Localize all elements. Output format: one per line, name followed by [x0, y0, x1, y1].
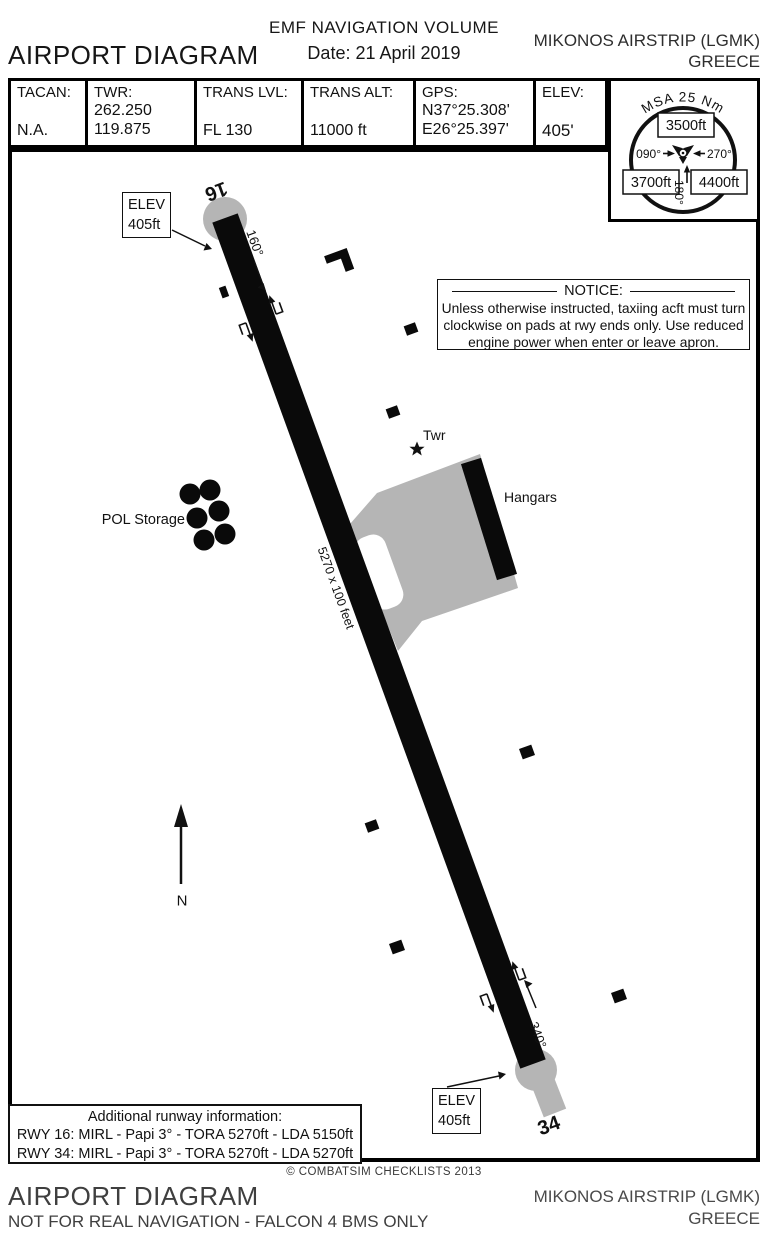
- building: [219, 286, 229, 299]
- building: [611, 989, 627, 1004]
- header-country: GREECE: [534, 51, 760, 72]
- msa-bearing-east: 270°: [707, 147, 732, 161]
- msa-bearing-west: 090°: [636, 147, 661, 161]
- msa-south-arrow: [684, 165, 690, 173]
- volume-title: EMF NAVIGATION VOLUME: [269, 18, 499, 38]
- msa-sector-southeast: 4400ft: [699, 175, 739, 191]
- tower-star-icon: [409, 442, 424, 456]
- elev16-arrow-line: [172, 230, 205, 246]
- footer-airport-name: MIKONOS AIRSTRIP (LGMK): [534, 1186, 760, 1208]
- addinfo-rwy16: RWY 16: MIRL - Papi 3° - TORA 5270ft - L…: [10, 1126, 360, 1144]
- elev34-line2: 405ft: [438, 1111, 475, 1131]
- addinfo-title: Additional runway information:: [10, 1108, 360, 1126]
- tacan-label: TACAN:: [17, 84, 79, 102]
- elev34-arrow-line: [447, 1076, 499, 1087]
- elev16-line2: 405ft: [128, 215, 165, 235]
- building: [404, 322, 419, 336]
- footer-page-title: AIRPORT DIAGRAM: [8, 1181, 259, 1212]
- tower-label: Twr: [423, 427, 446, 443]
- elev34-line1: ELEV: [438, 1091, 475, 1111]
- elev-label: ELEV:: [542, 84, 584, 102]
- elev-value: 405': [542, 121, 584, 141]
- l-shaped-building: [324, 248, 354, 277]
- trans-lvl-cell: TRANS LVL: FL 130: [197, 81, 304, 145]
- msa-west-arrow: [668, 150, 676, 156]
- pol-storage-tanks: [180, 480, 236, 551]
- notice-rule-right: [630, 291, 735, 292]
- gps-lon: E26°25.397': [422, 121, 527, 140]
- elev34-arrow-head: [498, 1072, 506, 1080]
- additional-info-box: Additional runway information: RWY 16: M…: [8, 1104, 362, 1164]
- header-airport-block: MIKONOS AIRSTRIP (LGMK) GREECE: [534, 30, 760, 73]
- page-title: AIRPORT DIAGRAM: [8, 40, 259, 71]
- date-line: Date: 21 April 2019: [307, 43, 460, 64]
- twr-freq-vhf: 119.875: [94, 121, 188, 140]
- trans-alt-label: TRANS ALT:: [310, 84, 407, 102]
- msa-east-arrow: [693, 150, 701, 156]
- elev34-box: ELEV 405ft: [432, 1088, 481, 1134]
- tacan-cell: TACAN: N.A.: [11, 81, 88, 145]
- north-label: N: [177, 893, 188, 910]
- building: [519, 745, 535, 760]
- msa-sector-southwest: 3700ft: [631, 175, 671, 191]
- copyright: © COMBATSIM CHECKLISTS 2013: [286, 1166, 481, 1178]
- notice-box: NOTICE: Unless otherwise instructed, tax…: [437, 279, 750, 350]
- date-label: Date:: [307, 43, 350, 63]
- addinfo-rwy34: RWY 34: MIRL - Papi 3° - TORA 5270ft - L…: [10, 1145, 360, 1163]
- msa-rose: MSA 25 Nm 3500ft 090° 270° 3700ft 4400ft: [611, 81, 757, 219]
- date-value: 21 April 2019: [355, 43, 460, 63]
- trans-lvl-value: FL 130: [203, 122, 295, 141]
- header-airport-name: MIKONOS AIRSTRIP (LGMK): [534, 30, 760, 51]
- rwy34-heading-arrow: [524, 980, 533, 988]
- elev16-line1: ELEV: [128, 195, 165, 215]
- footer-country: GREECE: [534, 1208, 760, 1230]
- building: [389, 940, 405, 955]
- trans-lvl-label: TRANS LVL:: [203, 84, 295, 102]
- trans-alt-value: 11000 ft: [310, 122, 407, 141]
- notice-line2: clockwise on pads at rwy ends only. Use …: [438, 317, 749, 334]
- notice-body: Unless otherwise instructed, taxiing acf…: [438, 300, 749, 352]
- notice-line1: Unless otherwise instructed, taxiing acf…: [438, 300, 749, 317]
- footer-disclaimer: NOT FOR REAL NAVIGATION - FALCON 4 BMS O…: [8, 1212, 428, 1232]
- msa-sector-north: 3500ft: [666, 118, 706, 134]
- footer-airport-block: MIKONOS AIRSTRIP (LGMK) GREECE: [534, 1186, 760, 1230]
- gps-lat: N37°25.308': [422, 102, 527, 121]
- rwy34-number: 34: [535, 1112, 564, 1141]
- pol-storage-label: POL Storage: [92, 512, 185, 528]
- notice-header: NOTICE:: [438, 283, 749, 299]
- building: [386, 405, 401, 419]
- msa-bearing-south: 180°: [672, 180, 686, 205]
- twr-label: TWR:: [94, 84, 188, 102]
- msa-airfield-symbol: [672, 145, 694, 164]
- gps-cell: GPS: N37°25.308' E26°25.397': [416, 81, 536, 145]
- notice-rule-left: [452, 291, 557, 292]
- twr-cell: TWR: 262.250 119.875: [88, 81, 197, 145]
- notice-line3: engine power when enter or leave apron.: [438, 334, 749, 351]
- building: [365, 819, 380, 833]
- north-arrow: N: [174, 804, 188, 910]
- hangars-label: Hangars: [504, 489, 557, 505]
- msa-box: MSA 25 Nm 3500ft 090° 270° 3700ft 4400ft: [608, 78, 760, 222]
- gps-label: GPS:: [422, 84, 527, 102]
- trans-alt-cell: TRANS ALT: 11000 ft: [304, 81, 416, 145]
- info-table: TACAN: N.A. TWR: 262.250 119.875 TRANS L…: [8, 78, 608, 148]
- airport-diagram-page: EMF NAVIGATION VOLUME Date: 21 April 201…: [0, 0, 768, 1240]
- notice-title: NOTICE:: [564, 283, 623, 299]
- tacan-value: N.A.: [17, 122, 79, 141]
- twr-freq-uhf: 262.250: [94, 102, 188, 121]
- elev-cell: ELEV: 405': [536, 81, 590, 145]
- elev16-box: ELEV 405ft: [122, 192, 171, 238]
- elev16-arrow-head: [204, 243, 213, 251]
